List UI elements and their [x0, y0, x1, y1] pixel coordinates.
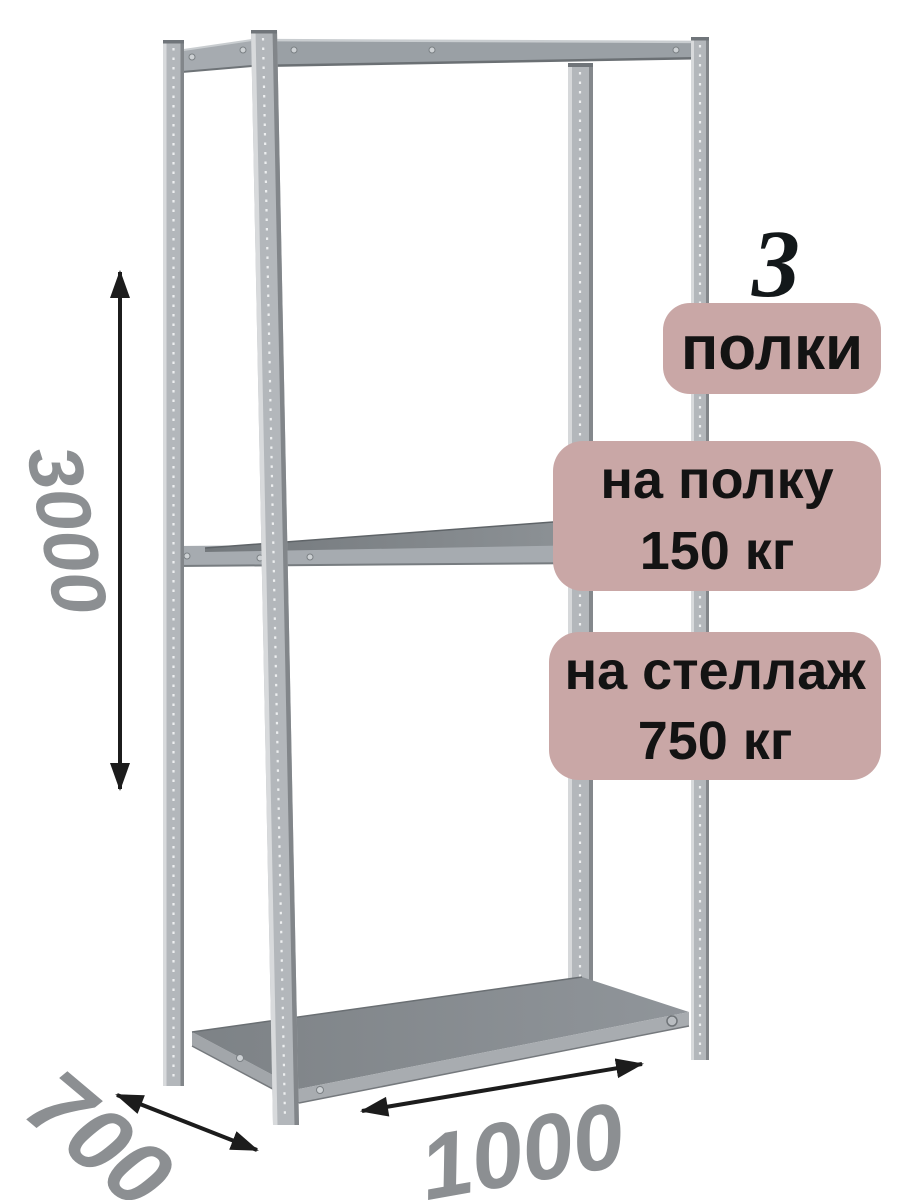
shelving-rack-illustration [0, 0, 900, 1200]
product-image: 3000 700 1000 3 полки на полку 150 кг на… [0, 0, 900, 1200]
per-rack-load-value: 750 кг [638, 706, 793, 776]
per-shelf-load-badge: на полку 150 кг [553, 441, 881, 591]
per-rack-load-caption: на стеллаж [564, 636, 865, 706]
shelf-count-number: 3 [752, 216, 800, 312]
per-shelf-load-caption: на полку [600, 445, 833, 516]
per-rack-load-badge: на стеллаж 750 кг [549, 632, 881, 780]
per-shelf-load-value: 150 кг [640, 516, 795, 587]
rack-top-shelf [170, 40, 709, 73]
rack-post-left-outer [163, 40, 184, 1086]
shelf-count-unit-label: полки [681, 313, 863, 384]
rack-bottom-shelf [192, 977, 689, 1103]
shelf-count-badge: полки [663, 303, 881, 394]
rack-post-left-inner [251, 30, 299, 1125]
rack-middle-shelf [176, 519, 593, 566]
